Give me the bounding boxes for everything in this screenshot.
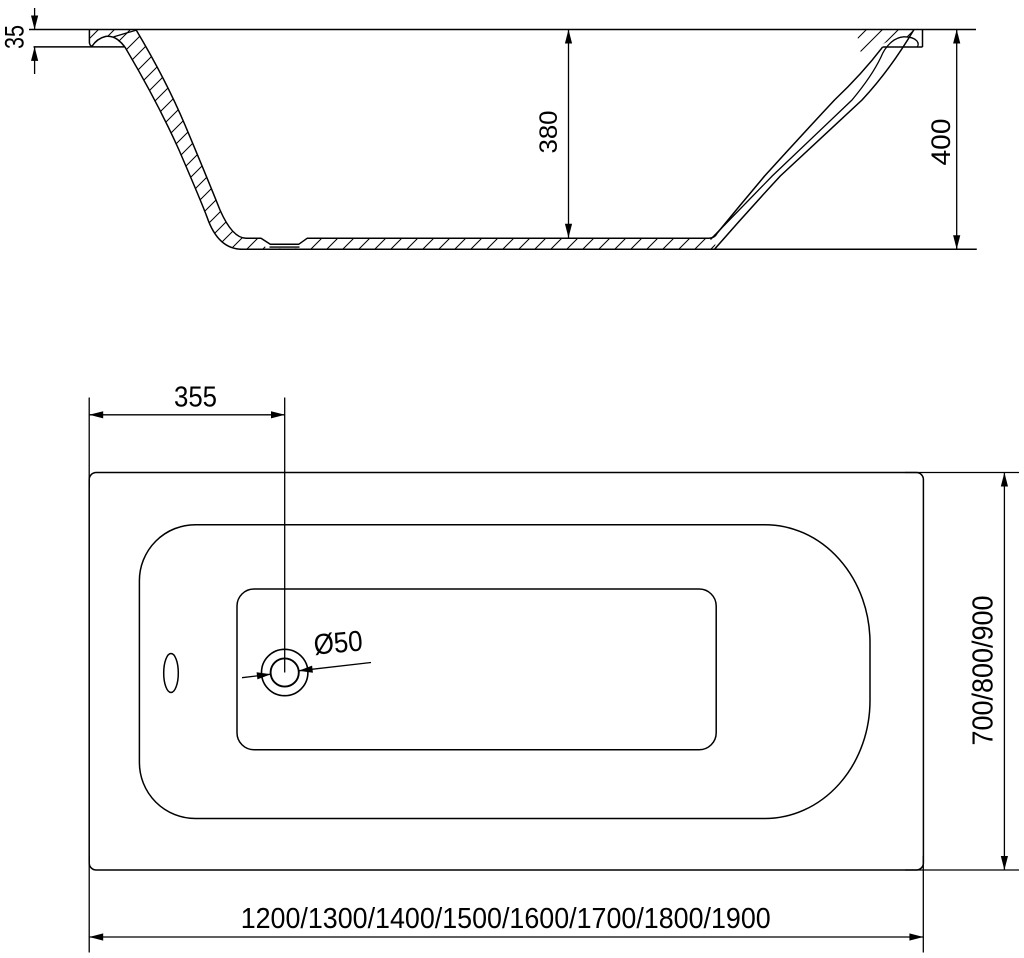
svg-text:355: 355 (174, 381, 217, 413)
svg-text:35: 35 (0, 25, 30, 49)
svg-text:400: 400 (926, 119, 956, 166)
svg-text:700/800/900: 700/800/900 (968, 596, 1000, 746)
svg-text:Ø50: Ø50 (312, 625, 364, 661)
svg-text:1200/1300/1400/1500/1600/1700/: 1200/1300/1400/1500/1600/1700/1800/1900 (241, 903, 771, 935)
svg-text:380: 380 (535, 111, 563, 154)
